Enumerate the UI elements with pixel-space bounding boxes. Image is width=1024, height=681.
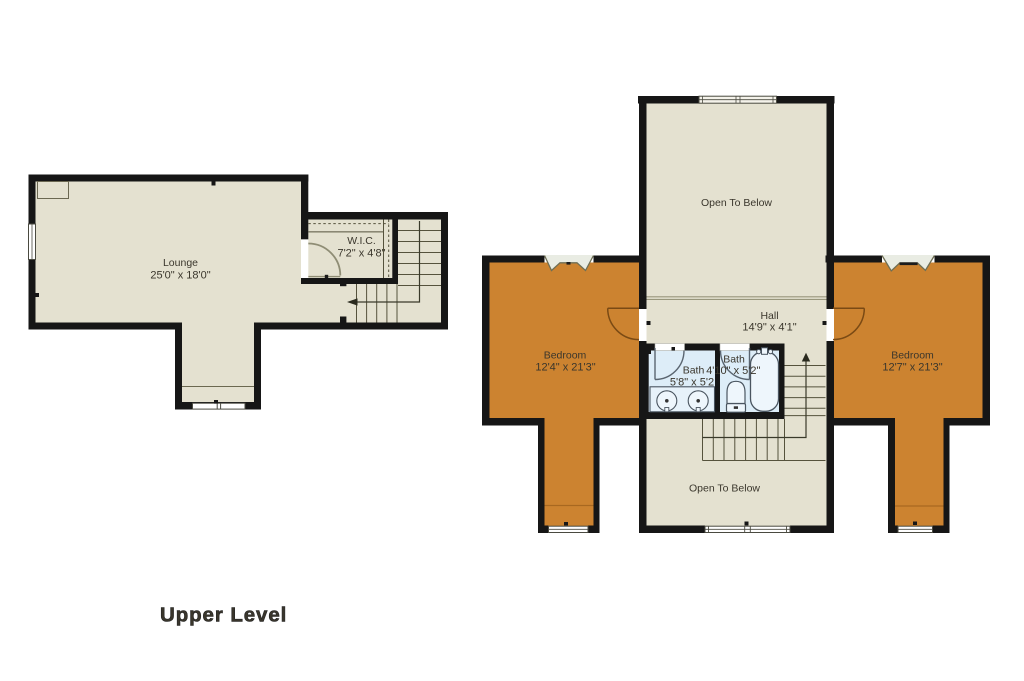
svg-text:Lounge: Lounge	[163, 257, 198, 269]
svg-text:14'9" x 4'1": 14'9" x 4'1"	[742, 322, 796, 334]
svg-text:Bath: Bath	[683, 365, 705, 377]
svg-text:25'0" x 18'0": 25'0" x 18'0"	[150, 270, 210, 282]
svg-text:Bath: Bath	[723, 354, 745, 366]
svg-text:7'2" x 4'8": 7'2" x 4'8"	[337, 248, 385, 260]
svg-text:W.I.C.: W.I.C.	[347, 235, 376, 247]
svg-text:12'4" x 21'3": 12'4" x 21'3"	[535, 362, 595, 374]
svg-text:Bedroom: Bedroom	[891, 350, 934, 362]
svg-text:12'7" x 21'3": 12'7" x 21'3"	[882, 362, 942, 374]
svg-text:Open To Below: Open To Below	[689, 483, 760, 495]
svg-text:Hall: Hall	[760, 310, 778, 322]
svg-text:5'8" x 5'2: 5'8" x 5'2	[670, 376, 714, 388]
svg-text:Upper Level: Upper Level	[160, 604, 287, 627]
svg-text:4'10" x 5'2": 4'10" x 5'2"	[706, 365, 760, 377]
svg-text:Open To Below: Open To Below	[701, 197, 772, 209]
svg-text:Bedroom: Bedroom	[544, 350, 587, 362]
